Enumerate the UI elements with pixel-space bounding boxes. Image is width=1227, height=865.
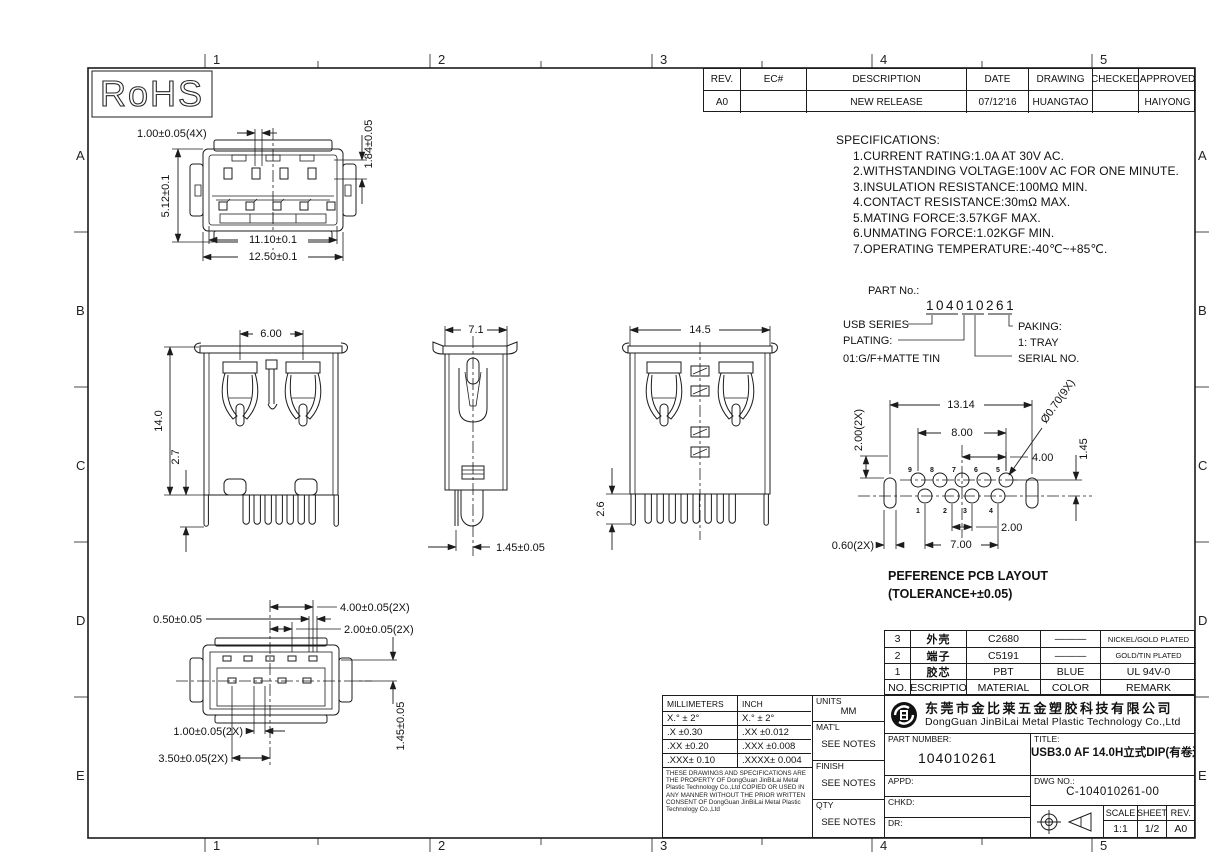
title-cell: TITLE: USB3.0 AF 14.0H立式DIP(有卷边)	[1031, 734, 1195, 776]
rev-cell-ec	[741, 91, 807, 113]
rohs-badge: RoHS	[92, 71, 212, 117]
rev-header-drawing: DRAWING	[1029, 69, 1093, 91]
dim-bottom-row-gap: 1.45±0.05	[395, 702, 407, 751]
part-number-cell: PART NUMBER: 104010261	[885, 734, 1031, 776]
scale-value-cell: 1:1	[1104, 821, 1138, 838]
appd-cell: APPD:	[885, 776, 1031, 797]
spec-item-7: 7.OPERATING TEMPERATURE:-40℃~+85℃.	[836, 242, 1196, 258]
mat-no-2: 2	[885, 648, 911, 664]
mat-footer-no: NO.	[885, 680, 911, 696]
dwg-no-value: C-104010261-00	[1031, 786, 1195, 798]
dim-bottom-pad-width2: 1.00±0.05(2X)	[173, 726, 243, 738]
zone-col-3-bottom: 3	[660, 838, 667, 853]
zone-row-d-left: D	[76, 613, 85, 628]
mat-color-3: ———	[1041, 631, 1101, 648]
rev-cell-checked	[1093, 91, 1139, 113]
qty-cell: QTY SEE NOTES	[813, 800, 885, 838]
pcb-pin-8: 8	[930, 467, 934, 474]
mat-footer-description: DESCRIPTION	[911, 680, 967, 696]
rev-header-approved: APPROVED	[1139, 69, 1196, 91]
mat-footer-color: COLOR	[1041, 680, 1101, 696]
zone-col-4-bottom: 4	[880, 838, 887, 853]
dwg-no-cell: DWG NO.: C-104010261-00	[1031, 776, 1195, 806]
pcb-caption-line1: PEFERENCE PCB LAYOUT	[888, 569, 1048, 583]
view-side: 7.1 1.45±0.05	[428, 323, 545, 556]
spec-item-1: 1.CURRENT RATING:1.0A AT 30V AC.	[836, 149, 1196, 165]
tol-mm-xx: .XX ±0.20	[663, 740, 738, 754]
dim-pcb-bottom-span: 7.00	[950, 539, 971, 551]
dim-body-claw-pitch: 6.00	[260, 328, 281, 340]
qty-value: SEE NOTES	[813, 817, 884, 828]
part-no-plating-label: PLATING:	[843, 335, 892, 347]
sheet-label-cell: SHEET	[1138, 806, 1167, 821]
third-angle-projection-icon	[1035, 808, 1099, 836]
pcb-pin-3: 3	[963, 508, 967, 515]
view-rear: 14.5 2.6	[595, 323, 778, 550]
view-bottom: 0.50±0.05 4.00±0.05(2X) 2.00±0.05(2X) 1.…	[153, 600, 414, 768]
mat-footer-remark: REMARK	[1101, 680, 1196, 696]
finish-value: SEE NOTES	[813, 778, 884, 789]
part-number-breakdown: PART No.: 104010261 USB SERIES PLATING: …	[843, 285, 1079, 365]
dim-bottom-pad-width: 0.50±0.05	[153, 614, 202, 626]
company-logo	[889, 700, 919, 730]
tol-mm-xxx: .XXX± 0.10	[663, 754, 738, 768]
mat-desc-3: 外壳	[911, 631, 967, 648]
pcb-pin-7: 7	[952, 467, 956, 474]
view-body-front: 6.00 14.0 2.7	[153, 327, 348, 552]
dim-bottom-pad-span2: 3.50±0.05(2X)	[158, 753, 228, 765]
rev-cell-drawing: HUANGTAO	[1029, 91, 1093, 113]
units-label: UNITS	[813, 696, 884, 706]
pcb-pin-5: 5	[996, 467, 1000, 474]
dim-pcb-slot-offset: 2.00(2X)	[853, 409, 865, 451]
rev-header-description: DESCRIPTION	[807, 69, 967, 91]
scale-label-cell: SCALE	[1104, 806, 1138, 821]
tolerance-table: MILLIMETERS INCH X.° ± 2° X.° ± 2° .X ±0…	[663, 696, 813, 768]
tol-header-mm: MILLIMETERS	[663, 696, 738, 712]
zone-col-5-bottom: 5	[1100, 838, 1107, 853]
tol-inch-xxxx: .XXXX± 0.004	[738, 754, 811, 768]
part-no-paking-label: PAKING:	[1018, 321, 1062, 333]
dim-pcb-hole-dia: Ø0.70(9X)	[1039, 377, 1078, 425]
dim-front-pin-height: 1.84±0.05	[363, 120, 375, 169]
pcb-pin-1: 1	[916, 508, 920, 515]
zone-col-4-top: 4	[880, 52, 887, 67]
rev-header-ec: EC#	[741, 69, 807, 91]
mat-desc-2: 端子	[911, 648, 967, 664]
chkd-label: CHKD:	[885, 797, 1030, 807]
tol-inch-angle: X.° ± 2°	[738, 712, 811, 726]
zone-row-b-right: B	[1198, 303, 1207, 318]
pcb-pin-6: 6	[974, 467, 978, 474]
dr-cell: DR:	[885, 818, 1031, 838]
company-name-en: DongGuan JinBiLai Metal Plastic Technolo…	[925, 716, 1181, 728]
dim-side-width: 7.1	[468, 324, 483, 336]
finish-cell: FINISH SEE NOTES	[813, 761, 885, 800]
specifications-title: SPECIFICATIONS:	[836, 133, 1196, 149]
specifications-block: SPECIFICATIONS: 1.CURRENT RATING:1.0A AT…	[836, 133, 1196, 257]
dim-pcb-slot-span: 13.14	[947, 399, 975, 411]
property-notice: THESE DRAWINGS AND SPECIFICATIONS ARE TH…	[663, 768, 813, 838]
matl-value: SEE NOTES	[813, 739, 884, 750]
dim-bottom-pad-span: 4.00±0.05(2X)	[340, 602, 410, 614]
revision-table: REV. EC# DESCRIPTION DATE DRAWING CHECKE…	[703, 68, 1195, 112]
title-label: TITLE:	[1031, 734, 1195, 744]
rev-cell-approved: HAIYONG	[1139, 91, 1196, 113]
chkd-cell: CHKD:	[885, 797, 1031, 818]
mat-material-2: C5191	[967, 648, 1041, 664]
drawing-title: USB3.0 AF 14.0H立式DIP(有卷边)	[1031, 747, 1195, 759]
mat-material-1: PBT	[967, 664, 1041, 680]
zone-row-e-left: E	[76, 768, 85, 783]
company-name-cn: 东莞市金比莱五金塑胶科技有限公司	[925, 701, 1181, 716]
zone-row-b-left: B	[76, 303, 85, 318]
zone-col-1-bottom: 1	[213, 838, 220, 853]
part-no-paking-value: 1: TRAY	[1018, 337, 1059, 349]
projection-cell	[1031, 806, 1104, 838]
mat-remark-2: GOLD/TIN PLATED	[1101, 648, 1196, 664]
tol-inch-xxx: .XXX ±0.008	[738, 740, 811, 754]
zone-row-c-left: C	[76, 458, 85, 473]
dim-pcb-half-span: 4.00	[1032, 452, 1053, 464]
rev-cell-date: 07/12'16	[967, 91, 1029, 113]
part-number-value: 104010261	[885, 750, 1030, 766]
sheet-value-cell: 1/2	[1138, 821, 1167, 838]
pcb-caption-line2: (TOLERANCE+±0.05)	[888, 587, 1012, 601]
dim-front-pin-width: 1.00±0.05(4X)	[137, 128, 207, 140]
drawing-sheet: 1 2 3 4 5 1 2 3 4 5 A B C D E A B C D E …	[0, 0, 1227, 865]
dim-rear-width: 14.5	[689, 324, 710, 336]
part-no-serial-label: SERIAL NO.	[1018, 353, 1079, 365]
dim-rear-leg: 2.6	[595, 501, 607, 516]
part-no-plating-value: 01:G/F+MATTE TIN	[843, 353, 940, 365]
zone-row-e-right: E	[1198, 768, 1207, 783]
tol-inch-xx: .XX ±0.012	[738, 726, 811, 740]
mat-desc-1: 胶芯	[911, 664, 967, 680]
spec-item-6: 6.UNMATING FORCE:1.02KGF MIN.	[836, 226, 1196, 242]
dim-bottom-pad-pitch: 2.00±0.05(2X)	[344, 624, 414, 636]
rohs-label: RoHS	[100, 73, 204, 114]
title-block: MILLIMETERS INCH X.° ± 2° X.° ± 2° .X ±0…	[662, 695, 1195, 838]
zone-col-5-top: 5	[1100, 52, 1107, 67]
dim-pcb-row-gap: 1.45	[1078, 438, 1090, 459]
zone-col-3-top: 3	[660, 52, 667, 67]
spec-item-2: 2.WITHSTANDING VOLTAGE:100V AC FOR ONE M…	[836, 164, 1196, 180]
view-front-face: 1.00±0.05(4X) 1.84±0.05 5.12±0.1 11.10±0…	[137, 120, 375, 263]
spec-item-4: 4.CONTACT RESISTANCE:30mΩ MAX.	[836, 195, 1196, 211]
matl-cell: MAT'L SEE NOTES	[813, 722, 885, 761]
dim-pcb-slot-width: 0.60(2X)	[832, 540, 874, 552]
zone-row-c-right: C	[1198, 458, 1207, 473]
zone-row-a-right: A	[1198, 148, 1207, 163]
part-number-label: PART NUMBER:	[885, 734, 1030, 744]
qty-label: QTY	[813, 800, 884, 810]
pcb-pin-9: 9	[908, 467, 912, 474]
mat-material-3: C2680	[967, 631, 1041, 648]
dim-body-height: 14.0	[153, 410, 165, 431]
mat-color-2: ———	[1041, 648, 1101, 664]
zone-row-d-right: D	[1198, 613, 1207, 628]
mat-footer-material: MATERIAL	[967, 680, 1041, 696]
company-header: 东莞市金比莱五金塑胶科技有限公司 DongGuan JinBiLai Metal…	[885, 696, 1195, 734]
zone-row-a-left: A	[76, 148, 85, 163]
tol-header-inch: INCH	[738, 696, 811, 712]
pcb-pin-4: 4	[989, 508, 993, 515]
tol-mm-x: .X ±0.30	[663, 726, 738, 740]
units-value: MM	[813, 706, 884, 717]
rev-header-date: DATE	[967, 69, 1029, 91]
mat-remark-3: NICKEL/GOLD PLATED	[1101, 631, 1196, 648]
spec-item-3: 3.INSULATION RESISTANCE:100MΩ MIN.	[836, 180, 1196, 196]
zone-col-2-top: 2	[438, 52, 445, 67]
dim-pcb-pin-pitch: 2.00	[1001, 522, 1022, 534]
rev-header-checked: CHECKED	[1093, 69, 1139, 91]
dim-front-inner-width: 11.10±0.1	[249, 234, 297, 246]
dim-front-outer-width: 12.50±0.1	[249, 251, 298, 263]
rev-value-cell: A0	[1167, 821, 1195, 838]
zone-col-2-bottom: 2	[438, 838, 445, 853]
tol-mm-angle: X.° ± 2°	[663, 712, 738, 726]
mat-no-3: 3	[885, 631, 911, 648]
part-no-label: PART No.:	[868, 285, 919, 297]
units-cell: UNITS MM	[813, 696, 885, 722]
pcb-pin-2: 2	[943, 508, 947, 515]
matl-label: MAT'L	[813, 722, 884, 732]
dwg-no-label: DWG NO.:	[1031, 776, 1195, 786]
dim-pcb-row-span: 8.00	[951, 427, 972, 439]
mat-no-1: 1	[885, 664, 911, 680]
finish-label: FINISH	[813, 761, 884, 771]
dr-label: DR:	[885, 818, 1030, 828]
dim-side-pin-offset: 1.45±0.05	[496, 542, 545, 554]
rev-label-cell: REV.	[1167, 806, 1195, 821]
spec-item-5: 5.MATING FORCE:3.57KGF MAX.	[836, 211, 1196, 227]
mat-color-1: BLUE	[1041, 664, 1101, 680]
part-no-number: 104010261	[926, 298, 1016, 313]
view-pcb-layout: 9 8 7 6 5 1 2 3 4 13.14 8.00 4.00 Ø0.70(…	[832, 377, 1092, 601]
material-table: 3 外壳 C2680 ——— NICKEL/GOLD PLATED 2 端子 C…	[884, 630, 1195, 695]
rev-cell-rev: A0	[704, 91, 741, 113]
rev-cell-description: NEW RELEASE	[807, 91, 967, 113]
mat-remark-1: UL 94V-0	[1101, 664, 1196, 680]
zone-col-1-top: 1	[213, 52, 220, 67]
dim-body-leg: 2.7	[170, 449, 182, 464]
rev-header-rev: REV.	[704, 69, 741, 91]
dim-front-shell-height: 5.12±0.1	[160, 175, 172, 218]
part-no-series-label: USB SERIES	[843, 319, 909, 331]
appd-label: APPD:	[885, 776, 1030, 786]
